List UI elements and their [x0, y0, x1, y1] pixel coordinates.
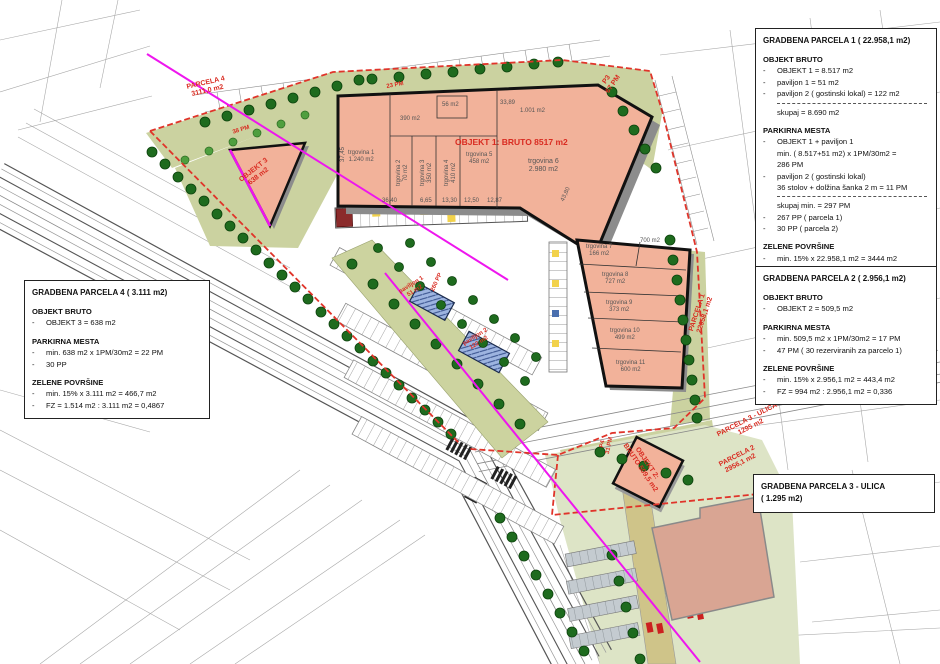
section-heading: ZELENE POVRŠINE [763, 363, 929, 374]
box-title: GRADBENA PARCELA 3 - ULICA [761, 481, 927, 493]
section-heading: ZELENE POVRŠINE [763, 241, 929, 252]
label-1001m2: 1.001 m2 [520, 108, 545, 115]
divider [777, 196, 927, 197]
label-objekt1: OBJEKT 1: BRUTO 8517 m2 [455, 138, 568, 148]
label-trg7: trgovina 7166 m2 [586, 244, 612, 258]
label-trgovina6: trgovina 62.980 m2 [528, 158, 559, 174]
section-heading: OBJEKT BRUTO [763, 292, 929, 303]
section-heading: PARKIRNA MESTA [32, 336, 202, 347]
box-title: GRADBENA PARCELA 1 ( 22.958,1 m2) [763, 35, 929, 47]
label-390m2: 390 m2 [400, 116, 420, 123]
site-plan-page: PARCELA 43111,0 m2 23 PM 38 PM P367 PM P… [0, 0, 940, 664]
label-trg5: trgovina 5458 m2 [466, 152, 492, 166]
section-heading: PARKIRNA MESTA [763, 322, 929, 333]
label-trg11: trgovina 11600 m2 [616, 360, 645, 374]
info-box-parcela1: GRADBENA PARCELA 1 ( 22.958,1 m2) OBJEKT… [755, 28, 937, 284]
dim-12-87: 12,87 [487, 198, 502, 205]
dim-12-50: 12,50 [464, 198, 479, 205]
dim-6-65: 6,65 [420, 198, 432, 205]
box-subtitle: ( 1.295 m2) [761, 493, 927, 505]
dim-33-89: 33,89 [500, 100, 515, 107]
box-title: GRADBENA PARCELA 2 ( 2.956,1 m2) [763, 273, 929, 285]
info-box-parcela3: GRADBENA PARCELA 3 - ULICA ( 1.295 m2) [753, 474, 935, 513]
building-objekt1 [338, 85, 652, 255]
label-trg1: trgovina 11.240 m2 [348, 150, 374, 164]
label-700m2: 700 m2 [640, 238, 660, 245]
label-trg10: trgovina 10499 m2 [610, 328, 640, 342]
info-box-parcela2: GRADBENA PARCELA 2 ( 2.956,1 m2) OBJEKT … [755, 266, 937, 405]
label-trg4: trgovina 4410 m2 [444, 160, 458, 186]
label-trg9: trgovina 9373 m2 [606, 300, 632, 314]
info-box-parcela4: GRADBENA PARCELA 4 ( 3.111 m2) OBJEKT BR… [24, 280, 210, 419]
dim-36-40: 36,40 [382, 198, 397, 205]
box-title: GRADBENA PARCELA 4 ( 3.111 m2) [32, 287, 202, 299]
label-56m2: 56 m2 [442, 102, 459, 109]
dim-13-30: 13,30 [442, 198, 457, 205]
label-trg3: trgovina 3350 m2 [420, 160, 434, 186]
dim-37-45: 37,45 [340, 147, 347, 162]
label-trg2: trgovina 270 m2 [396, 160, 410, 186]
section-heading: PARKIRNA MESTA [763, 125, 929, 136]
section-heading: ZELENE POVRŠINE [32, 377, 202, 388]
label-trg8: trgovina 8727 m2 [602, 272, 628, 286]
section-heading: OBJEKT BRUTO [32, 306, 202, 317]
section-heading: OBJEKT BRUTO [763, 54, 929, 65]
divider [777, 103, 927, 104]
